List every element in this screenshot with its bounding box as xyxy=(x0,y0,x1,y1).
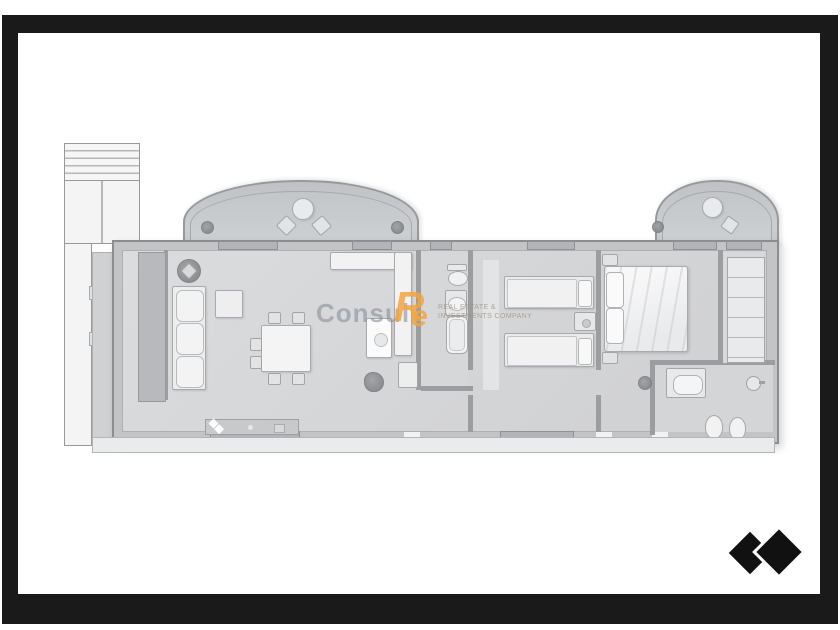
sink-basin xyxy=(448,297,466,311)
side-shaft xyxy=(64,243,92,446)
pillow xyxy=(606,308,624,344)
dining-table xyxy=(261,325,311,372)
side-terrace xyxy=(92,252,114,440)
bathroom2-vanity xyxy=(666,368,706,398)
stool xyxy=(398,362,418,388)
pillow xyxy=(578,338,592,365)
kitchen-counter-side xyxy=(394,252,412,356)
dining-chair xyxy=(250,338,262,351)
sofa-cushion xyxy=(176,356,204,388)
bay-plant xyxy=(201,221,214,234)
terrace-band xyxy=(92,437,775,453)
sofa-cushion xyxy=(176,323,204,355)
sideboard-box xyxy=(274,424,285,433)
wall-bedrooms-divider-lower xyxy=(596,395,601,432)
bathtub xyxy=(446,316,468,354)
dining-chair xyxy=(292,312,305,324)
bedroom-plant xyxy=(638,376,652,390)
twin-room-rug xyxy=(483,260,499,390)
sink-basin xyxy=(374,333,388,347)
bathtub-inner xyxy=(449,319,465,351)
bay-round-table xyxy=(702,197,723,218)
nightstand xyxy=(602,254,618,266)
bay-plant xyxy=(391,221,404,234)
bathroom1-vanity xyxy=(445,290,467,316)
sofa-cushion xyxy=(176,290,204,322)
single-bed-2 xyxy=(504,333,594,367)
dining-chair xyxy=(250,356,262,369)
window xyxy=(527,241,575,250)
window xyxy=(726,241,762,250)
floor-plan-page: Consul R e REAL ESTATE & INVESTMENTS COM… xyxy=(0,0,840,630)
pillow xyxy=(578,280,592,307)
toilet xyxy=(705,415,723,439)
floor-plant xyxy=(364,372,384,392)
window xyxy=(352,241,392,250)
mattress xyxy=(507,279,577,308)
wall-twinroom-left-lower xyxy=(468,395,473,432)
kitchen-island xyxy=(366,318,392,358)
armchair xyxy=(215,290,243,318)
dining-chair xyxy=(292,373,305,385)
wall-bath1-bottom xyxy=(421,386,473,391)
bay-round-table xyxy=(292,198,314,220)
wardrobe xyxy=(727,257,765,363)
nightstand-lamp xyxy=(582,319,591,328)
mattress xyxy=(507,336,577,366)
staircase xyxy=(64,143,140,181)
window xyxy=(430,241,452,250)
sideboard xyxy=(205,419,299,435)
dining-chair xyxy=(268,312,281,324)
pillow xyxy=(606,272,624,308)
nightstand xyxy=(574,312,596,331)
wall-bedrooms-divider xyxy=(596,250,601,370)
two-black-diamonds-icon-right xyxy=(756,529,801,574)
entry-closet xyxy=(138,252,166,402)
dining-chair xyxy=(268,373,281,385)
window xyxy=(673,241,717,250)
nightstand xyxy=(602,352,618,364)
sofa xyxy=(172,286,206,390)
sink-basin xyxy=(673,375,703,395)
wall-twinroom-left xyxy=(468,250,473,370)
bay-plant xyxy=(652,221,664,233)
agency-logo xyxy=(726,518,826,592)
sideboard-decor xyxy=(248,425,253,430)
window xyxy=(218,241,278,250)
toilet xyxy=(448,271,468,286)
stair-landing xyxy=(64,180,140,244)
landing-divider xyxy=(101,181,103,243)
toilet-tank xyxy=(447,264,467,271)
shower-handle xyxy=(759,381,765,384)
single-bed-1 xyxy=(504,276,594,309)
